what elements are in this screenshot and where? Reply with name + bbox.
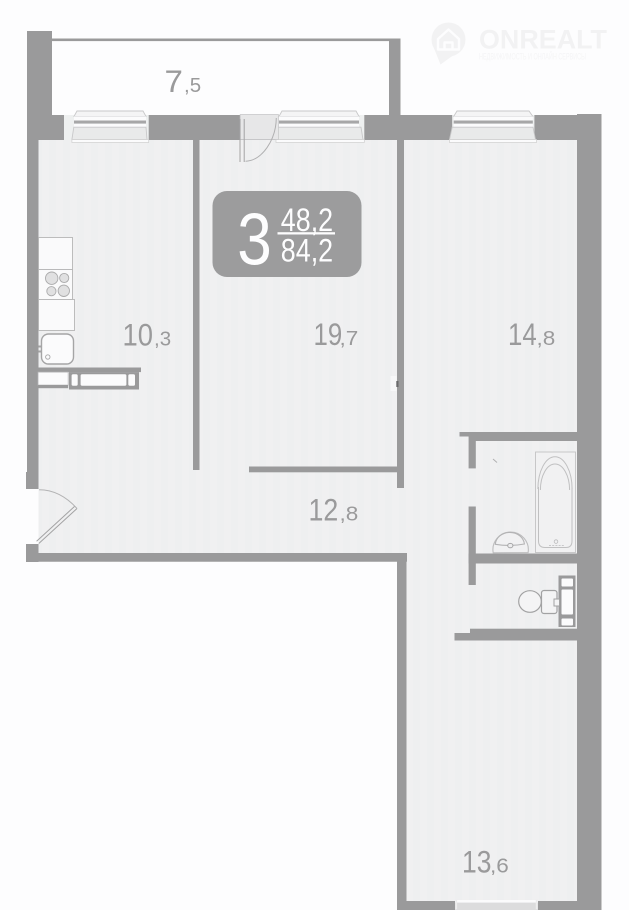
svg-text:,7: ,7 xyxy=(340,327,359,350)
svg-text:10: 10 xyxy=(123,318,153,353)
svg-text:7: 7 xyxy=(165,64,183,99)
svg-text:,8: ,8 xyxy=(340,502,359,525)
svg-text:,8: ,8 xyxy=(537,327,556,350)
svg-text:ONREALT: ONREALT xyxy=(479,25,607,55)
svg-text:19: 19 xyxy=(314,318,343,353)
svg-text:13: 13 xyxy=(462,845,491,880)
svg-text:НЕДВИЖИМОСТЬ И ОНЛАЙН СЕРВИСЫ: НЕДВИЖИМОСТЬ И ОНЛАЙН СЕРВИСЫ xyxy=(479,51,586,63)
svg-text:84,2: 84,2 xyxy=(281,233,333,269)
svg-text:3: 3 xyxy=(237,200,272,281)
svg-text:,3: ,3 xyxy=(154,328,171,351)
svg-text:14: 14 xyxy=(508,318,537,353)
svg-text:,5: ,5 xyxy=(184,74,201,97)
svg-text:,6: ,6 xyxy=(490,854,509,877)
svg-text:12: 12 xyxy=(309,494,339,528)
